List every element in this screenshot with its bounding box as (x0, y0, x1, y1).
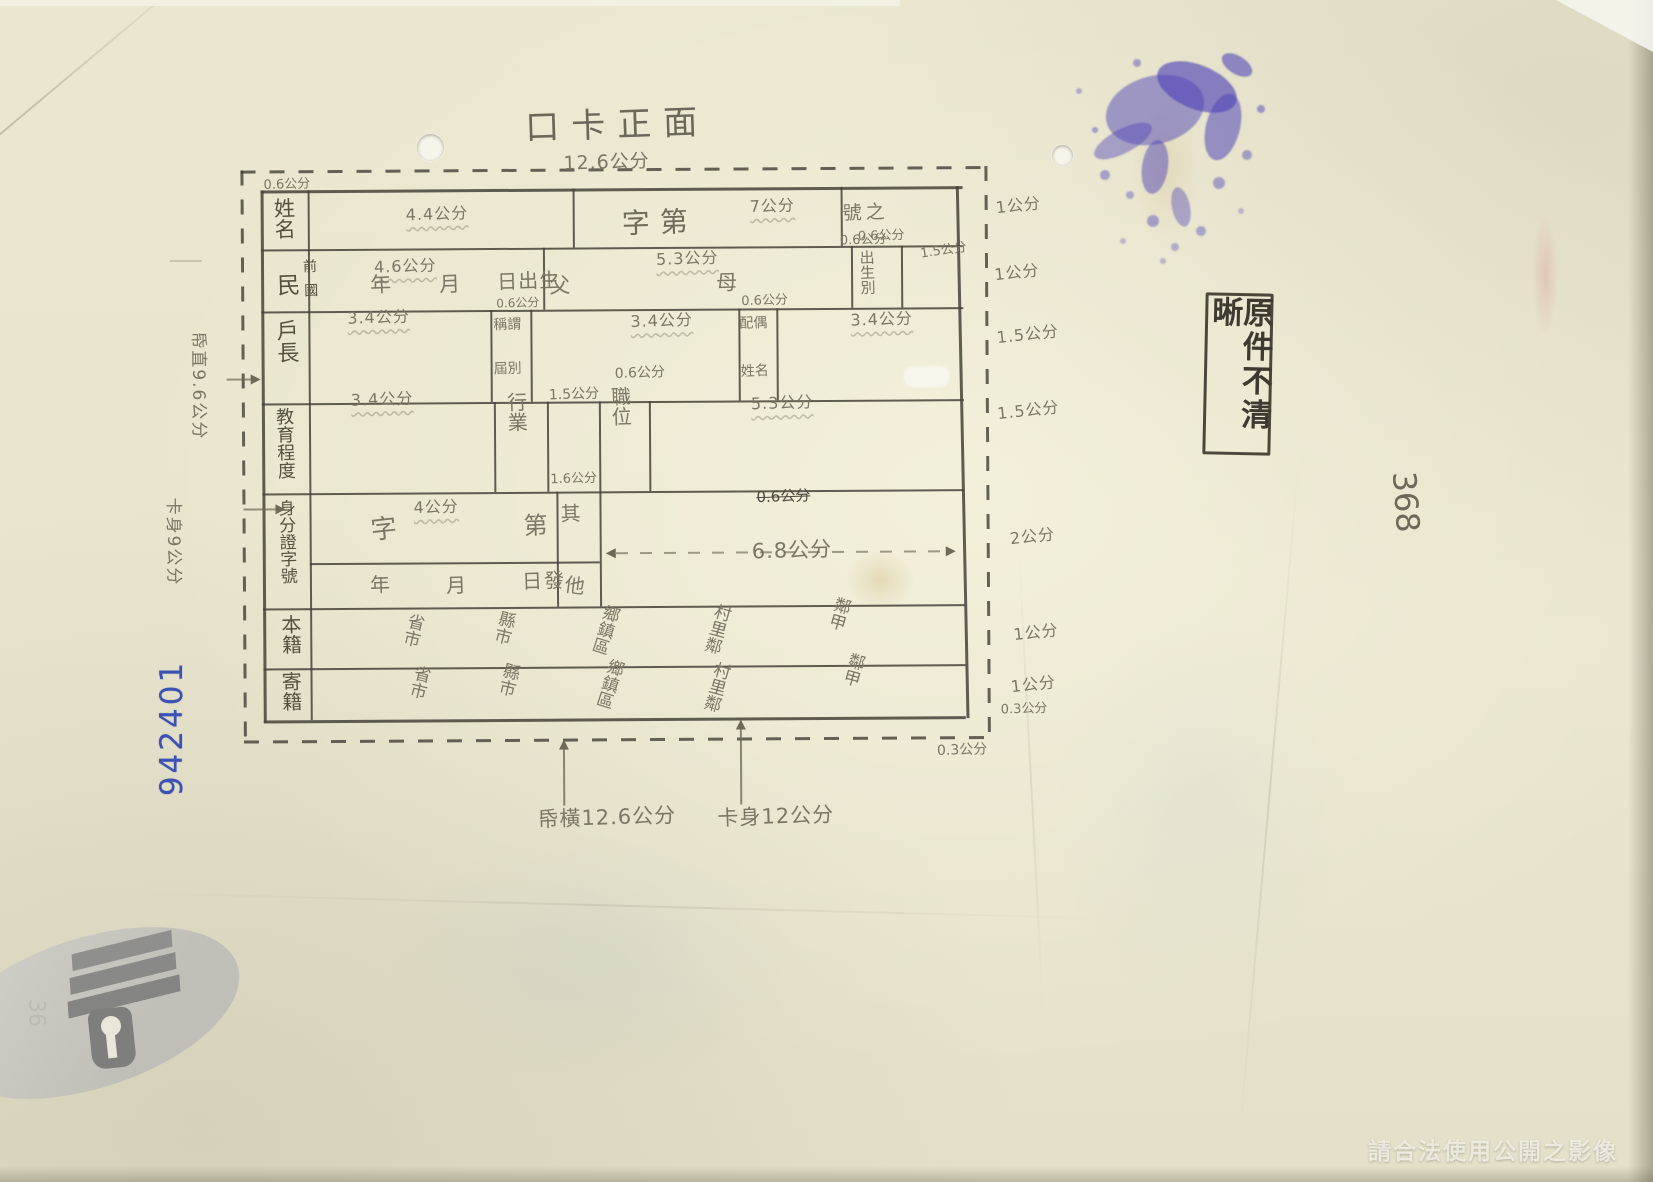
row7-item-county: 縣市 (489, 608, 514, 645)
dim-right-row7: 1公分 (1012, 616, 1060, 645)
row2-month: 月 (439, 268, 461, 299)
row56-struck-dim: 0.6公分 (756, 484, 811, 507)
paper-outline-right (984, 166, 990, 736)
row3-cell2-dim: 3.4公分 (630, 306, 693, 332)
paper-outline-bottom (244, 736, 991, 744)
row3-col1-bottom: 屆別 (493, 357, 522, 378)
cell-line (901, 246, 903, 308)
dim-right-row1: 1公分 (994, 189, 1042, 218)
row3-cell3-dim: 3.4公分 (850, 305, 913, 331)
cell-line (494, 402, 497, 492)
row8-item-county: 縣市 (494, 660, 519, 697)
row7-label: 本籍 (277, 614, 303, 655)
row8-item-neighborhood: 鄰甲 (838, 650, 864, 688)
card-border-top (261, 186, 963, 193)
dim-bottom-card-width: 卡身12公分 (717, 798, 835, 832)
row3-col2-bottom: 姓名 (740, 360, 769, 381)
dim-right-row3: 1.5公分 (995, 317, 1060, 348)
dim-right-row2: 1公分 (993, 256, 1041, 285)
cell-line (530, 310, 533, 402)
whiteout-correction (905, 367, 949, 386)
copyright-watermark: 請合法使用公開之影像 (1368, 1132, 1618, 1166)
card-border-right (956, 186, 970, 718)
row4-label: 教育程度 (273, 407, 295, 480)
row1-cell-dim: 4.4公分 (405, 199, 468, 225)
row2-col-dim: 0.6公分 (840, 228, 887, 248)
row2-mother: 母 (716, 266, 738, 297)
row7-item-province: 省市 (398, 611, 423, 648)
row56-span-dim: 6.8公分 (751, 533, 832, 566)
cell-line (599, 401, 602, 491)
card-border-bottom (264, 716, 966, 723)
cell-line (599, 491, 602, 606)
diagram-title: 口卡正面 (524, 94, 709, 149)
row56-month: 月 (445, 569, 466, 599)
row56-day-issued: 日發 (521, 564, 566, 594)
row3-col2-top: 配偶 (739, 312, 768, 333)
cell-line (573, 189, 575, 248)
row1-label: 姓名 (271, 197, 295, 240)
row56-year: 年 (369, 568, 390, 598)
row56-cell-dim: 4公分 (413, 493, 459, 518)
bottom-arrow-head-card (736, 719, 746, 729)
row1-serial-prefix: 字第 (621, 200, 698, 242)
row8-item-township: 鄉鎮區 (591, 656, 623, 710)
row1-cell2-dim: 7公分 (749, 192, 795, 217)
row2-year: 年 (370, 268, 392, 299)
row3-col1-top: 稱謂 (493, 313, 522, 334)
row56-other-bottom: 他 (563, 568, 587, 599)
row56-other-top: 其 (560, 497, 581, 527)
dim-right-row8: 1公分 (1009, 668, 1057, 697)
row4-cell1-dim: 3.4公分 (350, 385, 413, 411)
row3-col2-dim: 0.6公分 (741, 289, 788, 309)
dim-left-card-height: 卡身9公分 (163, 497, 189, 586)
dim-left-paper-height: 帋直9.6公分 (188, 331, 214, 440)
row3-label: 戶長 (271, 319, 300, 364)
span-arrow-left-head (606, 548, 616, 558)
row3-cell1-dim: 3.4公分 (347, 303, 410, 329)
dim-bottom-gap-upper: 0.3公分 (1000, 697, 1047, 717)
card-border-left (261, 190, 267, 722)
row2-birth-order-label: 出生別 (858, 250, 874, 295)
dim-bottom-gap-lower: 0.3公分 (937, 738, 988, 760)
row2-label-sub-bottom: 國 (304, 280, 319, 300)
row56-suffix: 第 (523, 505, 548, 541)
row4-industry-label: 行業 (502, 391, 529, 432)
cell-line (851, 246, 853, 308)
dim-top-width: 12.6公分 (563, 146, 650, 176)
row2-father: 父 (549, 269, 571, 300)
cell-line (547, 402, 550, 492)
row4-col2-dim: 0.6公分 (614, 361, 665, 383)
row2-label-sub-top: 前 (303, 256, 318, 276)
left-arrow-shaft-2 (243, 508, 277, 510)
row56-prefix: 字 (369, 507, 399, 547)
row7-item-neighborhood: 鄰甲 (824, 594, 850, 632)
row7-item-village: 村里鄰 (700, 601, 731, 655)
row4-cell2-dim: 1.5公分 (548, 383, 599, 405)
bottom-arrow-shaft-paper (563, 748, 565, 806)
left-arrow-shaft (227, 379, 253, 381)
scanned-document: 原件不清晰 368 942401 36 口卡正面 12.6公分 0.6公分 (0, 0, 1653, 1182)
row2-last-col-dim: 1.5公分 (919, 236, 968, 262)
row2-cell2-dim: 5.3公分 (656, 244, 719, 270)
paper-outline-left (240, 171, 246, 741)
row56-col-dim: 1.6公分 (550, 467, 597, 487)
row8-label: 寄籍 (278, 671, 303, 712)
row4-cell3-dim: 5.3公分 (750, 388, 813, 414)
left-arrow-head (251, 374, 261, 384)
bottom-arrow-head-paper (559, 740, 569, 750)
cell-line (776, 308, 779, 400)
row1-serial-suffix: 號之 (842, 197, 889, 225)
dim-right-rows56: 2公分 (1008, 520, 1056, 549)
row7-item-township: 鄉鎮區 (587, 602, 619, 656)
archive-logo (10, 920, 260, 1110)
row-line (262, 489, 964, 495)
span-arrow-right-head (946, 546, 956, 556)
cell-line (649, 401, 652, 491)
dim-right-row4: 1.5公分 (996, 393, 1061, 424)
row4-position-label: 職位 (606, 386, 633, 427)
dim-bottom-paper-width: 帋橫12.6公分 (537, 799, 677, 833)
row3-col1-dim: 0.6公分 (496, 293, 540, 311)
row2-label-main: 民 (277, 266, 301, 301)
left-arrow-head-2 (275, 504, 285, 514)
